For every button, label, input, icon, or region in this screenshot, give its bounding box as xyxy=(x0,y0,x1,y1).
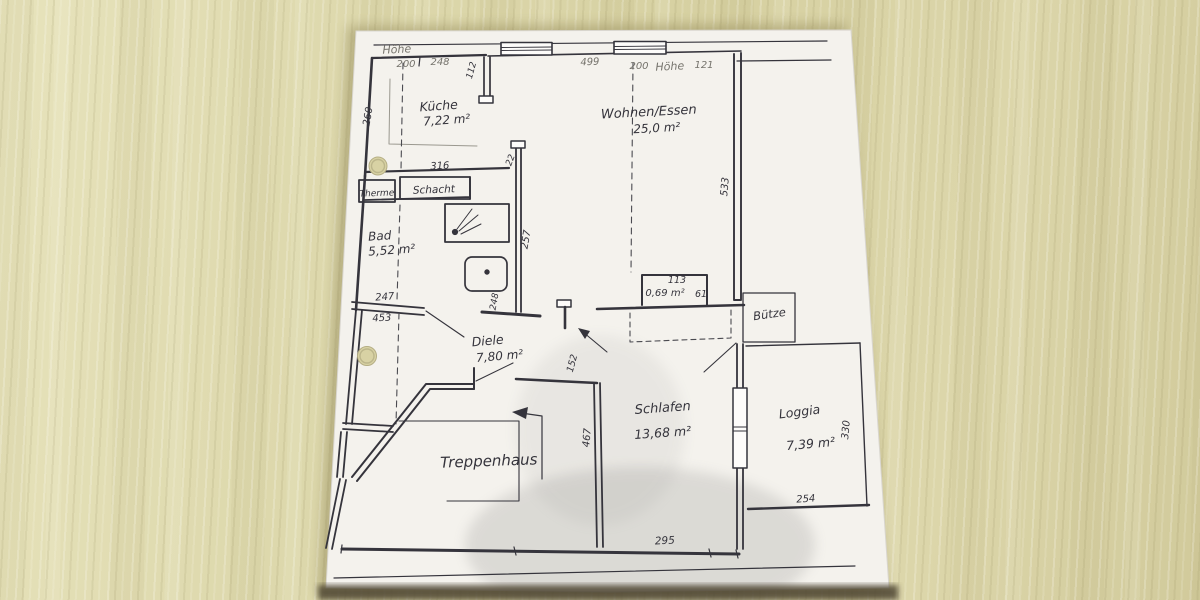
dim-113: 113 xyxy=(668,275,686,286)
label-hoehe-right: Höhe xyxy=(655,59,685,73)
dim-247: 247 xyxy=(375,291,395,303)
dim-316: 316 xyxy=(430,161,450,173)
floorplan-sheet: Höhe 200 248 499 200 Höhe 121 112 260 22… xyxy=(0,0,1200,600)
wall-foot xyxy=(557,300,571,307)
dim-121: 121 xyxy=(694,60,713,71)
dim-453: 453 xyxy=(372,313,392,325)
dim-330: 330 xyxy=(840,420,853,440)
balcony-door-symbol xyxy=(733,388,747,468)
drain-icon xyxy=(485,270,489,274)
dim-533: 533 xyxy=(719,177,732,197)
dim-254: 254 xyxy=(796,493,816,505)
table-edge-shadow xyxy=(318,585,898,600)
dim-467: 467 xyxy=(581,427,594,448)
dim-200-top-right: 200 xyxy=(629,61,648,72)
shower-head-icon xyxy=(452,229,457,234)
photo-of-floorplan: Höhe 200 248 499 200 Höhe 121 112 260 22… xyxy=(0,0,1200,600)
room-label-therme: Therme xyxy=(359,188,395,199)
room-label-diele: Diele xyxy=(471,332,504,350)
dim-248-top: 248 xyxy=(430,57,449,68)
dim-200-top-left: 200 xyxy=(396,59,415,70)
window-symbol xyxy=(614,42,666,55)
room-area-abstellraum: 0,69 m² xyxy=(645,288,684,299)
wall-foot xyxy=(479,96,493,103)
wall-foot xyxy=(511,141,525,148)
window-symbol xyxy=(501,43,552,56)
dim-61: 61 xyxy=(695,289,707,300)
label-hoehe-left: Höhe xyxy=(382,42,412,56)
room-label-bad: Bad xyxy=(368,228,393,244)
room-label-schacht: Schacht xyxy=(413,183,456,196)
room-label-treppenhaus: Treppenhaus xyxy=(440,450,538,471)
dim-499: 499 xyxy=(580,57,599,69)
room-area-wohnen-essen: 25,0 m² xyxy=(633,120,681,136)
dim-295: 295 xyxy=(655,534,676,547)
